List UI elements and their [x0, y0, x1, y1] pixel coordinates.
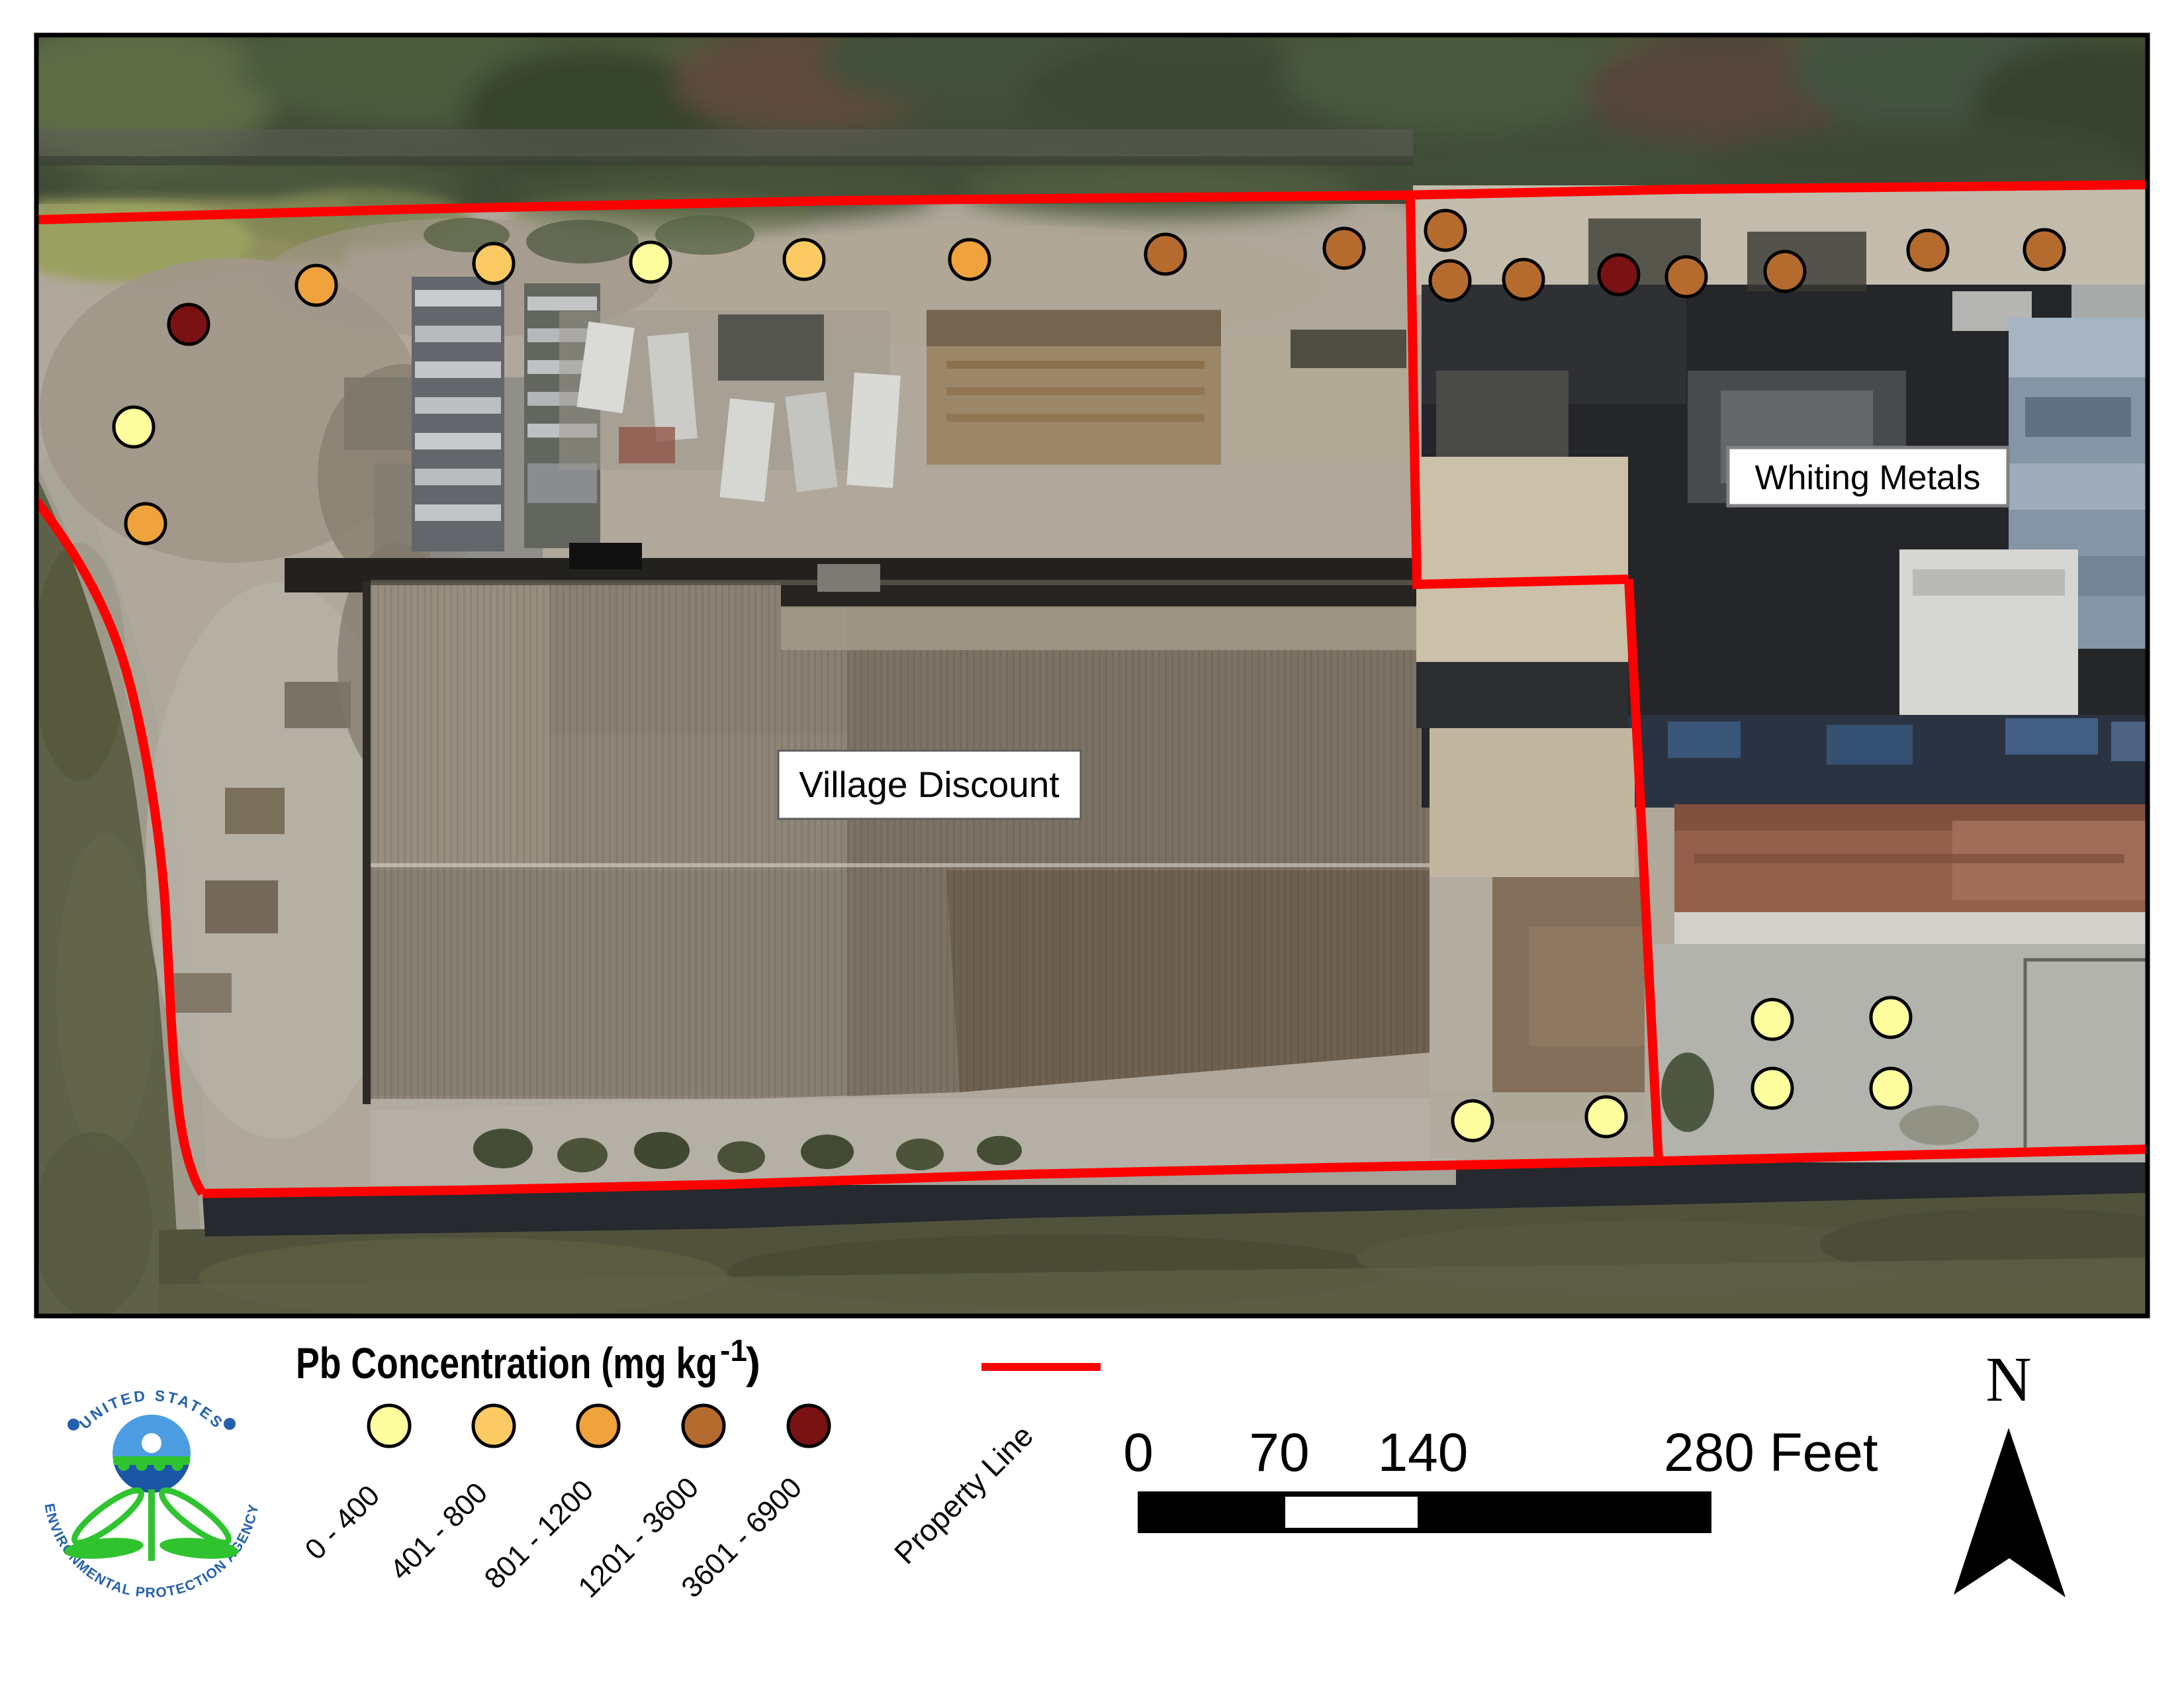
- svg-text:0 - 400: 0 - 400: [299, 1479, 387, 1566]
- svg-text:0: 0: [1123, 1423, 1154, 1483]
- svg-text:280 Feet: 280 Feet: [1664, 1423, 1878, 1483]
- svg-text:-1: -1: [720, 1333, 747, 1368]
- svg-text:N: N: [1985, 1344, 2031, 1415]
- svg-text:Pb Concentration (mg kg: Pb Concentration (mg kg: [296, 1338, 717, 1387]
- svg-text:): ): [746, 1338, 760, 1387]
- svg-text:70: 70: [1249, 1423, 1309, 1483]
- svg-text:Property Line: Property Line: [887, 1418, 1040, 1570]
- svg-text:Whiting Metals: Whiting Metals: [1755, 459, 1981, 497]
- svg-text:140: 140: [1378, 1423, 1469, 1483]
- svg-text:Village Discount: Village Discount: [799, 764, 1059, 805]
- svg-text:401 - 800: 401 - 800: [384, 1476, 494, 1586]
